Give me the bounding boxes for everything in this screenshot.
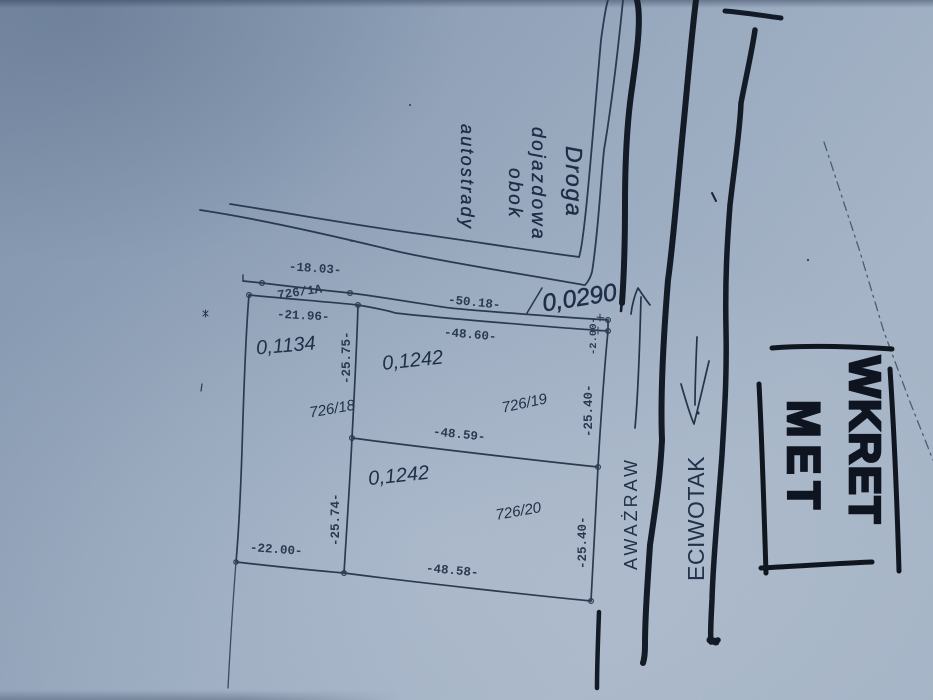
svg-text:AWAŻRAW: AWAŻRAW <box>621 457 641 570</box>
svg-text:MET: MET <box>778 400 829 516</box>
svg-text:-21.96-: -21.96- <box>277 308 330 325</box>
svg-text:-2.00-: -2.00- <box>588 317 600 355</box>
svg-text:dojazdowa: dojazdowa <box>527 127 548 241</box>
svg-text:obok: obok <box>504 168 525 219</box>
svg-text:-25.74-: -25.74- <box>329 493 343 546</box>
svg-text:WKRET: WKRET <box>840 356 889 525</box>
svg-text:autostrady: autostrady <box>457 124 477 230</box>
svg-text:ECIWOTAK: ECIWOTAK <box>683 456 709 581</box>
svg-text:-25.40-: -25.40- <box>582 384 596 437</box>
svg-text:-25.75-: -25.75- <box>340 331 354 384</box>
svg-text:Droga: Droga <box>561 146 587 218</box>
svg-text:-25.40-: -25.40- <box>576 516 590 569</box>
